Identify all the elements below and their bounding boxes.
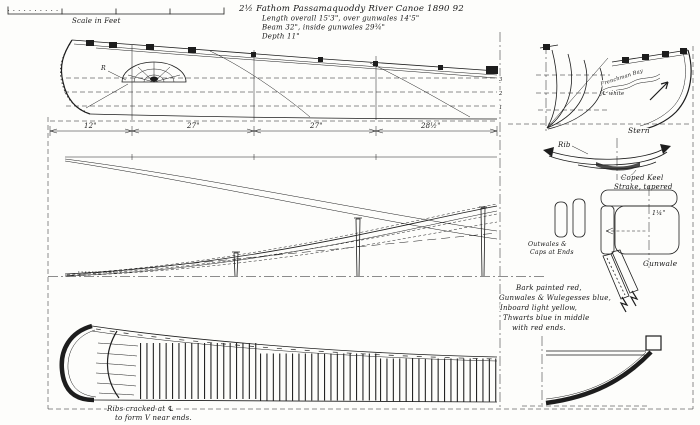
outwales-label-line-1: Outwales &: [528, 241, 567, 248]
body-plan-sections: [536, 44, 612, 134]
plan-thwarts: [232, 207, 487, 276]
dimension-28half: 28½": [420, 122, 441, 130]
color-note-line-5: with red ends.: [512, 324, 566, 332]
stern-caption: Stern: [628, 126, 650, 135]
scale-bar: Scale in Feet: [8, 7, 224, 26]
title-line-1: 2½ Fathom Passamaquoddy River Canoe 1890…: [238, 3, 464, 14]
gunwale-dimension: 1¼": [652, 210, 665, 217]
dimension-12: 12": [84, 122, 97, 130]
title-line-4: Depth 11": [261, 33, 300, 41]
color-note: Bark painted red, Gunwales & Wulegesses …: [499, 284, 611, 332]
canoe-plan-drawing: Scale in Feet 2½ Fathom Passamaquoddy Ri…: [0, 0, 700, 425]
gunwale-section-detail: 1¼" Gunwale: [601, 186, 679, 312]
dimension-27a: 27": [186, 122, 200, 130]
bow-design-ref-label: R: [100, 65, 106, 72]
title-line-2: Length overall 15'3", over gunwales 14'5…: [261, 15, 419, 23]
half-breadth-plan: [48, 154, 545, 277]
color-note-line-1: Bark painted red,: [515, 284, 582, 292]
waterline-label-3: 3: [499, 77, 503, 83]
outwales-label-line-2: Caps at Ends: [530, 249, 574, 256]
scale-bar-label: Scale in Feet: [72, 17, 121, 25]
keel-note-line-1: Coped Keel: [621, 174, 663, 182]
drawing-sheet: Scale in Feet 2½ Fathom Passamaquoddy Ri…: [0, 0, 700, 425]
bow-decoration: R: [100, 62, 186, 82]
stern-centerline-note: ℄ white: [602, 91, 624, 97]
ribs-texture: [140, 371, 497, 380]
ribs-note-line-2: to form V near ends.: [115, 414, 192, 422]
color-note-line-3: Inboard light yellow,: [499, 304, 577, 312]
gunwale-caption: Gunwale: [643, 259, 678, 268]
waterline-label-2: 2: [498, 91, 503, 97]
title-line-3: Beam 32", inside gunwales 29¾": [261, 24, 385, 32]
bow-sheathing-lines: [96, 343, 138, 395]
rib-cross-section-detail: Rib Coped Keel Strake, tapered: [543, 138, 673, 191]
end-elevation-detail: [522, 336, 661, 408]
stern-design-note: Frenchman Bay: [599, 68, 644, 88]
profile-view: 3 2 1 R: [50, 40, 503, 136]
rib-label: Rib: [557, 141, 571, 149]
interior-plan-view: Ribs cracked at ℄ to form V near ends.: [62, 326, 497, 422]
dimension-line: 12" 27" 27" 28½": [50, 122, 497, 136]
color-note-line-4: Thwarts blue in middle: [503, 314, 590, 322]
dimension-27b: 27": [309, 122, 323, 130]
color-note-line-2: Gunwales & Wulegesses blue,: [499, 294, 611, 302]
title-block: 2½ Fathom Passamaquoddy River Canoe 1890…: [238, 3, 464, 41]
stern-profile-detail: Frenchman Bay ℄ white Stern: [599, 48, 691, 135]
waterline-label-1: 1: [499, 105, 503, 111]
ribs-note: Ribs cracked at ℄ to form V near ends.: [106, 405, 192, 422]
ribs-note-line-1: Ribs cracked at ℄: [106, 405, 174, 413]
outwales-detail: Outwales & Caps at Ends: [528, 199, 585, 256]
